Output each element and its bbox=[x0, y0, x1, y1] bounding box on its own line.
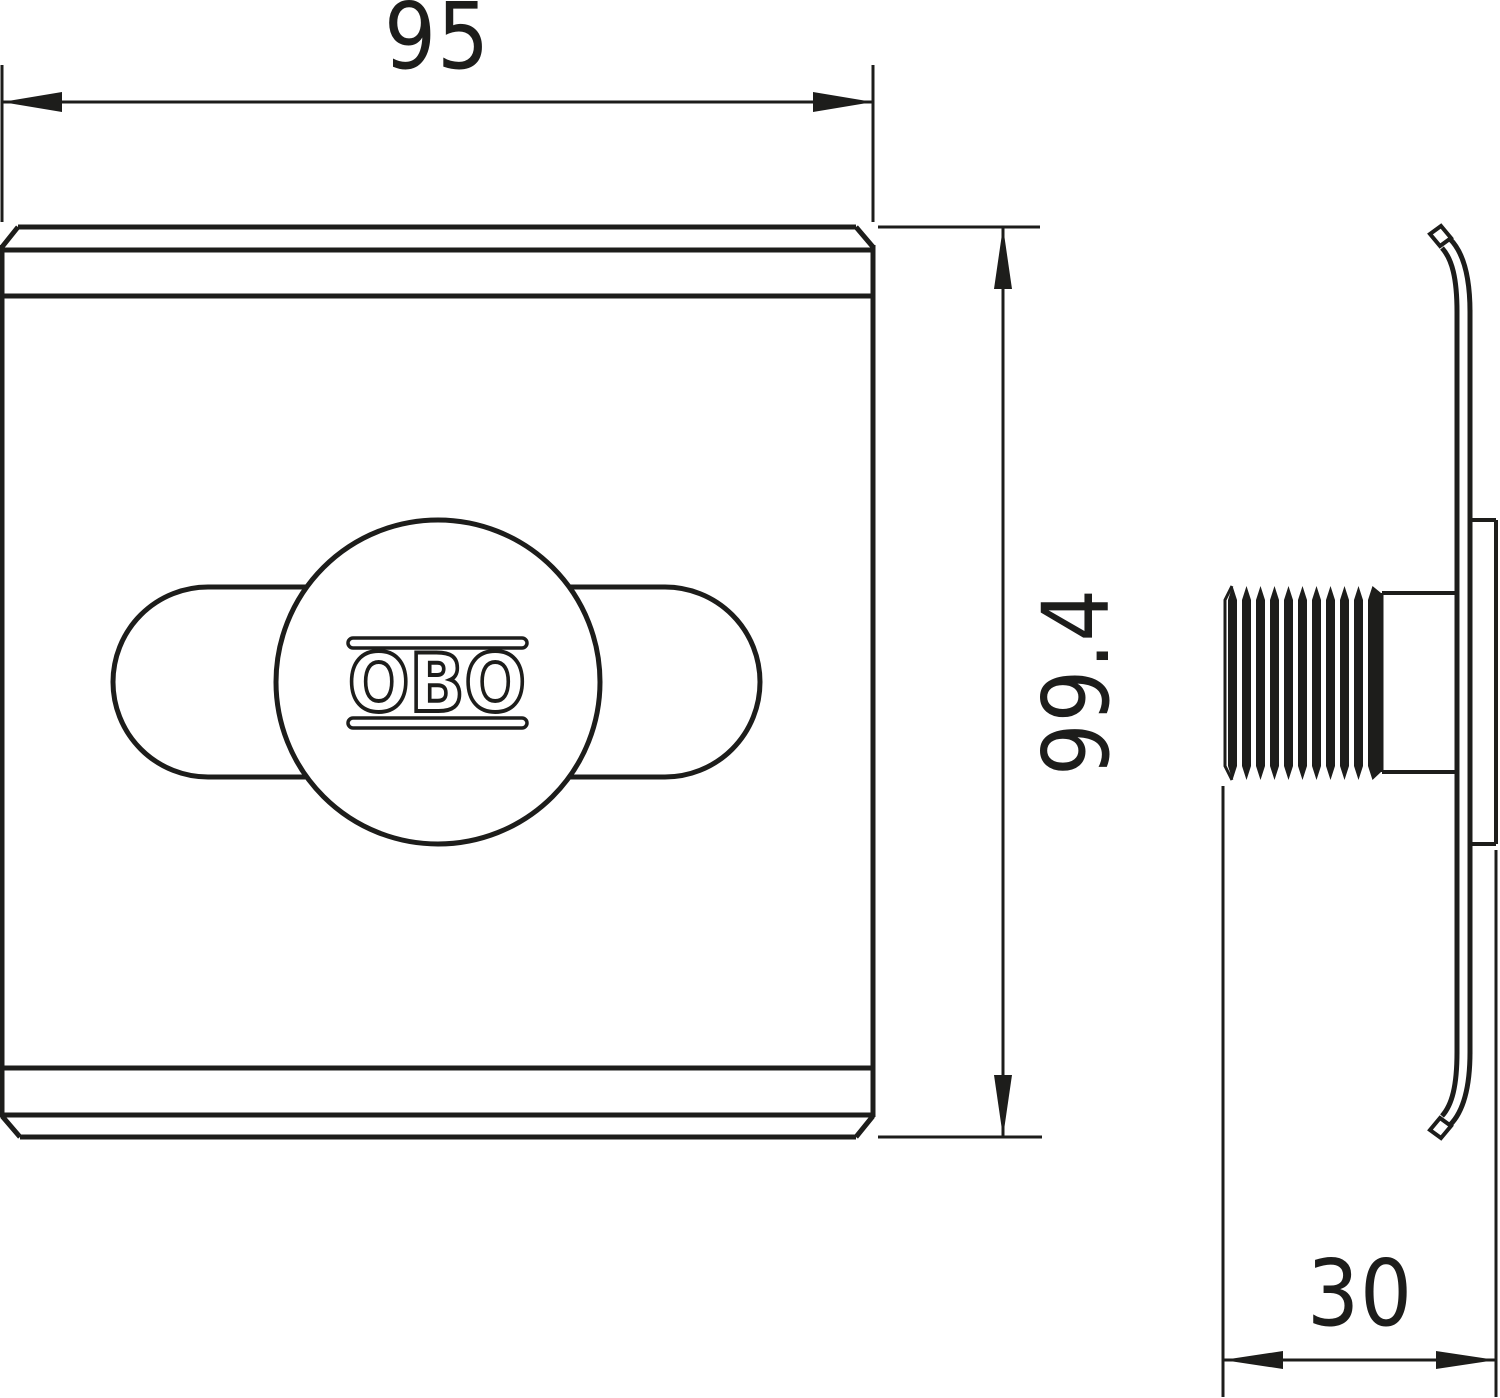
dimension-width: 95 bbox=[2, 0, 873, 222]
arrowhead-right-icon bbox=[813, 92, 873, 112]
clip-top-tip bbox=[1430, 226, 1451, 246]
arrowhead-left-icon bbox=[1223, 1351, 1283, 1369]
thread-neck-lines bbox=[1382, 593, 1457, 772]
rear-flange bbox=[1470, 520, 1496, 844]
arrowhead-left-icon bbox=[2, 92, 62, 112]
clip-bottom bbox=[1430, 1052, 1470, 1138]
clip-top-curves bbox=[1442, 239, 1470, 312]
clip-top bbox=[1430, 226, 1470, 312]
dimension-width-label: 95 bbox=[384, 0, 490, 90]
dimension-depth-label: 30 bbox=[1307, 1240, 1413, 1347]
arrowhead-right-icon bbox=[1436, 1351, 1496, 1369]
front-view: OBO bbox=[2, 227, 873, 1137]
technical-drawing-canvas: OBO 95 99.4 bbox=[0, 0, 1500, 1398]
thread-teeth bbox=[1228, 586, 1381, 780]
clip-bottom-curves bbox=[1442, 1052, 1470, 1125]
plate-side-faces bbox=[1457, 310, 1470, 1054]
side-view bbox=[1225, 226, 1496, 1138]
logo-text: OBO bbox=[348, 637, 526, 730]
extension-lines-height bbox=[878, 227, 1042, 1137]
clip-bottom-tip bbox=[1430, 1118, 1451, 1138]
arrowhead-down-icon bbox=[994, 1075, 1012, 1137]
obo-logo: OBO bbox=[348, 637, 527, 730]
dimension-height: 99.4 bbox=[878, 227, 1130, 1137]
dimension-height-label: 99.4 bbox=[1023, 588, 1130, 776]
dimension-drawing: OBO 95 99.4 bbox=[0, 0, 1500, 1398]
arrowhead-up-icon bbox=[994, 227, 1012, 289]
thread-profile bbox=[1225, 586, 1382, 780]
